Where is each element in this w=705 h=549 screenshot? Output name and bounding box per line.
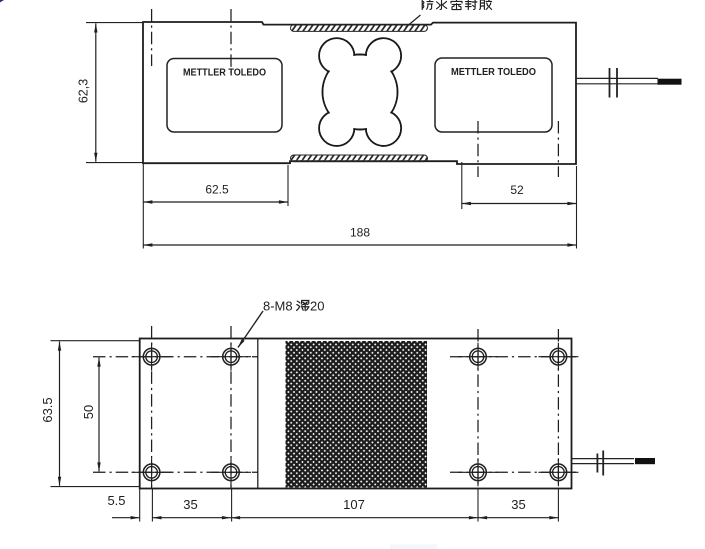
svg-text:52: 52 [510,183,524,197]
svg-text:35: 35 [183,497,197,512]
svg-text:8-M8: 8-M8 [263,299,293,314]
svg-text:5.5: 5.5 [107,493,125,508]
svg-text:107: 107 [343,497,365,512]
svg-text:63.5: 63.5 [40,397,55,422]
svg-text:20: 20 [310,299,324,314]
svg-text:62.5: 62.5 [205,183,229,197]
svg-text:35: 35 [511,497,525,512]
svg-text:50: 50 [81,405,96,419]
svg-text:METTLER TOLEDO: METTLER TOLEDO [183,67,266,78]
svg-text:METTLER TOLEDO: METTLER TOLEDO [451,67,536,78]
svg-text:62,3: 62,3 [77,79,91,103]
svg-text:188: 188 [350,226,370,240]
